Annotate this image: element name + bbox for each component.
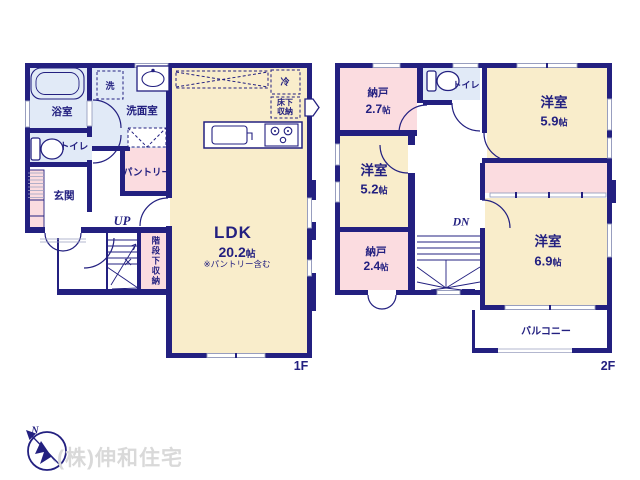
room-bath [25,63,92,133]
compass-north-label: N [31,425,38,437]
storage-b-size: 2.4帖 [363,260,388,274]
bedroom-b-label: 洋室 [361,163,388,179]
washer-label: 洗 [105,81,114,91]
stairs-up-label: UP [114,214,131,228]
bedroom-a-size: 5.9帖 [540,115,567,130]
ldk-size-label: 20.2帖 [218,244,255,260]
floor1-label: 1F [294,359,309,373]
entrance-shoe-cabinet [28,170,44,232]
balcony-label: バルコニー [521,326,571,338]
ldk-label: LDK [214,223,252,243]
washroom-label: 洗面室 [126,105,158,117]
room-bedroom-6-9 [485,198,607,305]
back-door-icon [305,99,319,116]
fridge-label: 冷 [280,77,289,87]
underfloor-storage-label: 床下収納 [277,98,293,116]
toilet-1f-label: トイレ [60,143,89,154]
stairs-down-icon [417,236,480,290]
sink-icon [137,66,169,91]
entrance-label: 玄関 [54,190,75,202]
bedroom-a-label: 洋室 [541,95,568,111]
floor2-label: 2F [601,359,616,373]
bedroom-b-size: 5.2帖 [360,183,387,198]
kitchen-counter-icon [204,122,302,148]
floor-plan-canvas: 浴室 洗 洗面室 トイレ 玄関 パントリー UP 階段下収納 冷 床下収納 LD… [0,0,640,480]
closet-sliding-door [490,192,606,198]
toilet-2f-label: トイレ [452,80,479,90]
bedroom-c-label: 洋室 [535,234,562,250]
ldk-note-label: ※パントリー含む [203,260,270,270]
storage-a-size: 2.7帖 [365,103,390,117]
room-closet-strip [485,163,607,193]
toilet-icon-1f [31,138,63,160]
company-watermark: (株)伸和住宅 [57,442,183,472]
bath-label: 浴室 [52,106,73,118]
pantry-label: パントリー [123,169,171,180]
stairs-down-label: DN [453,216,470,229]
under-stair-storage-label: 階段下収納 [150,236,160,286]
storage-a-label: 納戸 [368,87,389,99]
bedroom-c-size: 6.9帖 [534,255,561,270]
closet-bifold-icon [128,128,166,147]
storage-b-label: 納戸 [366,246,387,258]
stairs-up-icon [107,240,138,289]
